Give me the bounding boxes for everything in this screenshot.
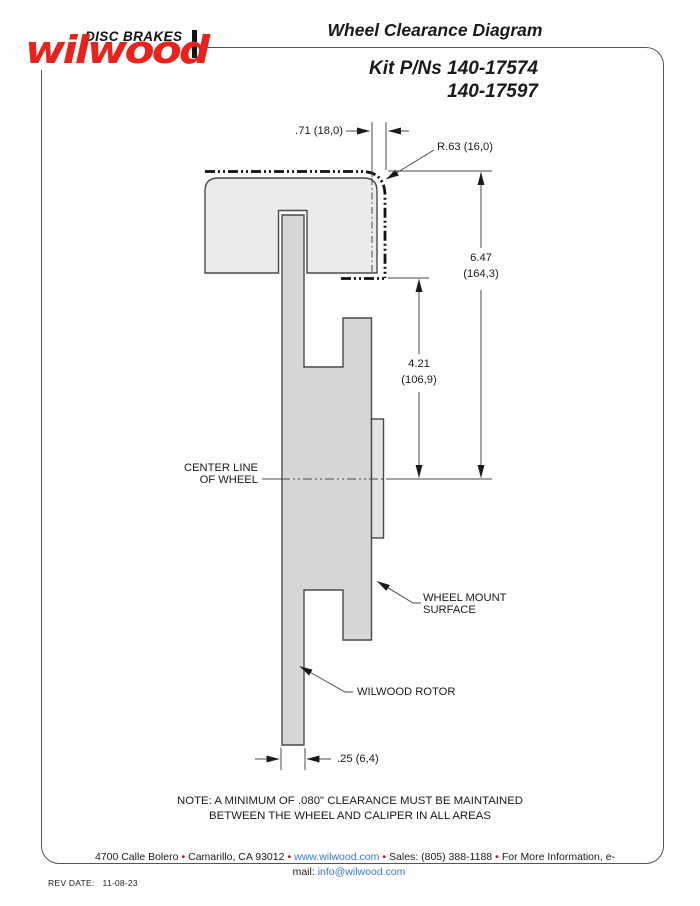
rev-date-value: 11-08-23	[103, 878, 138, 888]
kit-part-numbers: Kit P/Ns 140-17574 140-17597	[330, 58, 538, 104]
dim-wheel-lip-width: .71 (18,0)	[263, 124, 343, 138]
wheel-mount-leader	[378, 582, 422, 604]
wilwood-logo: DISC BRAKES wilwood	[25, 20, 215, 74]
rotor-and-hat	[282, 215, 372, 745]
footer-city: Camarillo, CA 93012	[188, 851, 284, 863]
centerline-label: CENTER LINE OF WHEEL	[168, 463, 258, 487]
logo-brand-text: wilwood	[25, 31, 208, 70]
dim-647-lines	[388, 171, 492, 478]
rev-date: REV DATE:11-08-23	[48, 878, 138, 888]
dim-71-lines	[346, 122, 409, 177]
dim-corner-radius: R.63 (16,0)	[437, 140, 493, 154]
wheel-clearance-drawing	[0, 0, 700, 906]
clearance-note-line2: BETWEEN THE WHEEL AND CALIPER IN ALL ARE…	[95, 809, 605, 824]
dim-rotor-width: .25 (6,4)	[337, 752, 379, 766]
footer-bullet: •	[495, 851, 499, 863]
kit-pn-line1: Kit P/Ns 140-17574	[330, 58, 538, 81]
footer-website-link[interactable]: www.wilwood.com	[294, 851, 379, 863]
footer-contact-strip: 4700 Calle Bolero•Camarillo, CA 93012•ww…	[41, 850, 663, 880]
kit-pn-line2: 140-17597	[330, 81, 538, 104]
dim-25-lines	[255, 748, 331, 770]
footer-address: 4700 Calle Bolero	[95, 851, 178, 863]
footer-bullet: •	[382, 851, 386, 863]
footer-bullet: •	[287, 851, 291, 863]
wilwood-rotor-label: WILWOOD ROTOR	[357, 685, 455, 699]
footer-email-link[interactable]: info@wilwood.com	[318, 866, 406, 878]
footer-bullet: •	[181, 851, 185, 863]
rev-date-label: REV DATE:	[48, 878, 95, 888]
rotor-leader	[300, 667, 353, 693]
wheel-mount-surface-label: WHEEL MOUNT SURFACE	[423, 592, 507, 617]
page-title: Wheel Clearance Diagram	[270, 20, 600, 41]
footer-text: 4700 Calle Bolero•Camarillo, CA 93012•ww…	[89, 851, 615, 878]
clearance-note-line1: NOTE: A MINIMUM OF .080" CLEARANCE MUST …	[95, 794, 605, 809]
clearance-note: NOTE: A MINIMUM OF .080" CLEARANCE MUST …	[95, 794, 605, 824]
footer-sales-phone: Sales: (805) 388-1188	[389, 851, 492, 863]
dim-inner-depth: 4.21 (106,9)	[385, 356, 453, 388]
radius-leader	[387, 150, 435, 179]
dim-outer-depth: 6.47 (164,3)	[447, 250, 515, 282]
